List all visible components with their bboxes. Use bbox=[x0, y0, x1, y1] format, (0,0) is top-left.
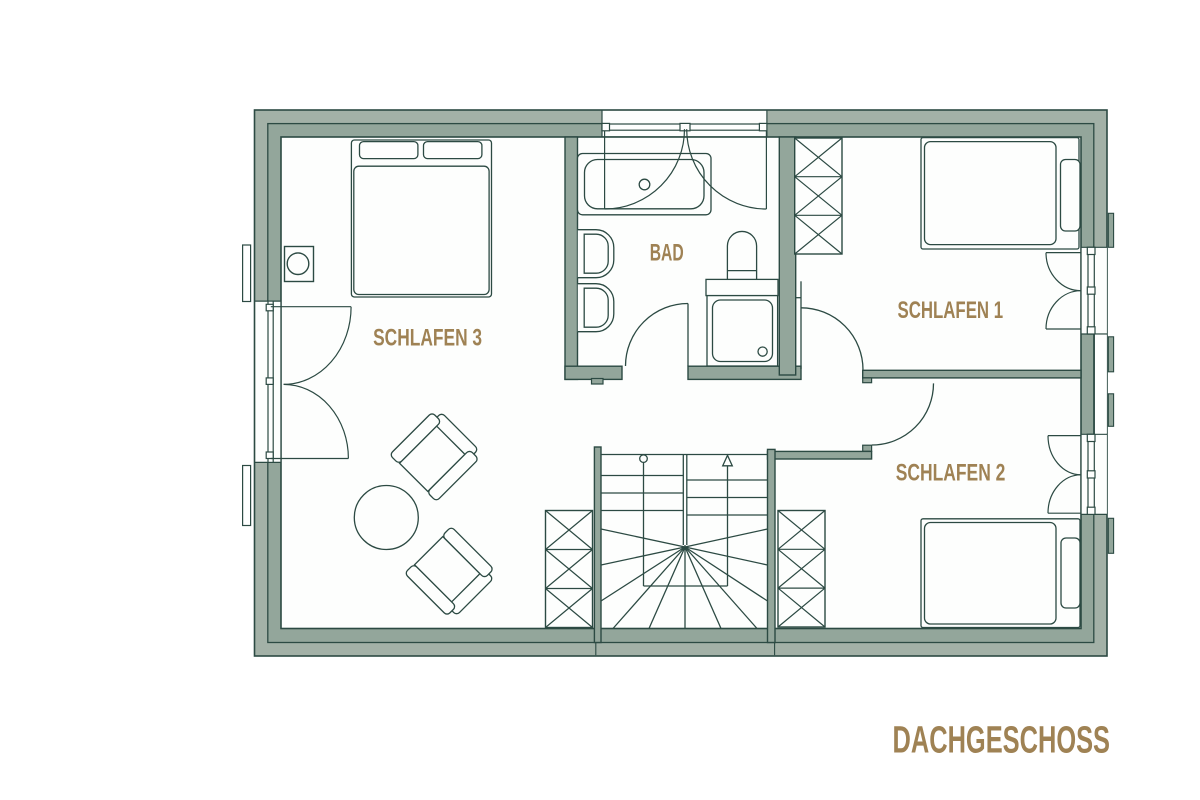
svg-text:BAD: BAD bbox=[650, 240, 684, 267]
svg-text:SCHLAFEN 2: SCHLAFEN 2 bbox=[896, 459, 1006, 486]
svg-text:DACHGESCHOSS: DACHGESCHOSS bbox=[893, 720, 1111, 762]
svg-text:SCHLAFEN 3: SCHLAFEN 3 bbox=[373, 325, 482, 352]
svg-text:SCHLAFEN 1: SCHLAFEN 1 bbox=[898, 297, 1004, 324]
